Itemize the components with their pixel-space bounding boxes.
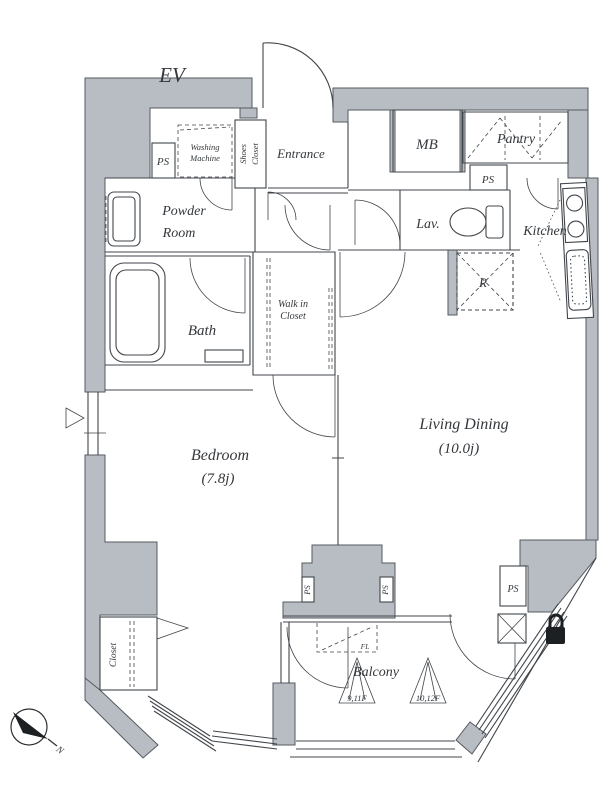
label-mb: MB: [415, 137, 438, 153]
ld-door: [340, 252, 405, 317]
wall-entrance-pillar: [240, 108, 257, 118]
wic-door-hall: [285, 205, 330, 250]
kitchen-marks: [538, 200, 560, 300]
wic-door-bedroom: [273, 375, 335, 437]
label-balcony: Balcony: [353, 665, 400, 680]
burner-2: [567, 221, 584, 238]
label-lav: Lav.: [415, 217, 439, 232]
padlock-icon: [546, 615, 565, 644]
bedroom-left-window: [88, 392, 98, 455]
vent-mark: [66, 408, 106, 433]
label-hatch-b: 10,12F: [416, 693, 441, 703]
entrance-door: [263, 43, 333, 108]
wall-fridge-side: [448, 250, 457, 315]
label-entrance: Entrance: [276, 146, 325, 161]
powder-sink-inner: [113, 197, 135, 241]
label-bedroom: Bedroom: [191, 447, 249, 464]
toilet-tank: [486, 206, 503, 238]
wall-balcony-right-wedge: [520, 540, 596, 612]
label-ps-balcony-3: PS: [506, 584, 518, 595]
bedroom-diagonal-window: [148, 696, 216, 751]
balcony-bottom-window: [290, 741, 462, 757]
label-ev: EV: [158, 63, 187, 87]
floorplan-page: EV Entrance MB Pantry PS PS PS PS PS Was…: [0, 0, 600, 800]
label-ps-balcony-2: PS: [380, 585, 390, 596]
compass-tail: [48, 739, 57, 746]
washing-machine-mark: [180, 127, 230, 130]
label-powder-1: Powder: [161, 204, 206, 219]
balcony-left-boundary: [281, 622, 289, 683]
label-pantry: Pantry: [496, 132, 536, 147]
label-ps-pantry: PS: [481, 174, 495, 186]
label-closet: Closet: [109, 643, 119, 668]
label-wic-2: Closet: [280, 311, 306, 322]
closet-door-mark: [157, 618, 188, 639]
toilet-bowl: [450, 208, 486, 236]
entrance-inner-door: [268, 192, 296, 220]
pantry-door: [527, 178, 558, 209]
label-hatch-a: 9,11F: [347, 693, 367, 703]
label-living-area: (10.0j): [439, 441, 479, 457]
compass: [11, 709, 57, 746]
label-living-dining: Living Dining: [418, 416, 508, 433]
label-fridge: R: [478, 275, 487, 290]
label-washing-machine-1: Washing: [191, 142, 220, 152]
wall-balcony-pillar-steps: [283, 545, 395, 618]
powder-bath-wall: [105, 252, 255, 256]
kitchen-sink-inner: [570, 256, 586, 305]
bath-counter: [205, 350, 243, 362]
balcony-door-left: [287, 627, 348, 688]
lav-door: [355, 200, 400, 245]
bath-bedroom-wall: [105, 365, 253, 390]
entrance-step: [268, 188, 348, 193]
floor-plan: EV Entrance MB Pantry PS PS PS PS PS Was…: [0, 0, 600, 800]
label-kitchen: Kitchen: [522, 224, 567, 239]
label-powder-2: Room: [162, 226, 196, 241]
bedroom-ld-divider: [332, 375, 344, 545]
wall-right-column: [568, 110, 588, 178]
label-fl: FL: [360, 642, 370, 651]
label-bath: Bath: [188, 323, 216, 339]
bedroom-bottom-window: [212, 731, 277, 749]
label-shoes-closet-1: Shoes: [238, 143, 248, 164]
walls: [85, 78, 598, 758]
label-north: N: [53, 744, 65, 757]
bath-door: [190, 258, 245, 313]
burner-1: [566, 195, 583, 212]
label-bedroom-area: (7.8j): [202, 471, 235, 487]
label-ps-balcony-1: PS: [302, 585, 312, 596]
label-wic-1: Walk in: [278, 299, 308, 310]
drain-box: [498, 614, 526, 643]
label-ps-left: PS: [156, 156, 170, 168]
wall-bedroom-balcony-pillar: [273, 683, 295, 745]
bathtub-inner: [116, 270, 159, 355]
label-washing-machine-2: Machine: [189, 153, 220, 163]
padlock-body: [546, 627, 565, 644]
label-shoes-closet-2: Closet: [250, 143, 260, 165]
